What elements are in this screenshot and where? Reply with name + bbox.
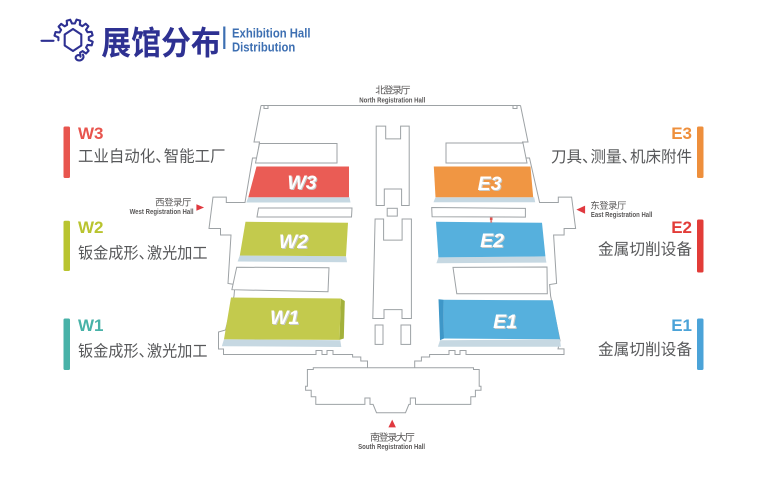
svg-text:W3: W3 <box>78 124 104 143</box>
svg-text:E1: E1 <box>671 316 692 335</box>
svg-text:E3: E3 <box>671 124 692 143</box>
svg-text:W1: W1 <box>78 316 104 335</box>
svg-text:W2: W2 <box>78 218 104 237</box>
svg-text:E2: E2 <box>671 218 692 237</box>
svg-text:W3: W3 <box>287 172 316 194</box>
svg-text:W1: W1 <box>270 307 299 329</box>
svg-text:E1: E1 <box>493 311 517 333</box>
svg-text:E3: E3 <box>478 173 502 195</box>
svg-text:North Registration Hall: North Registration Hall <box>359 97 425 104</box>
svg-text:Distribution: Distribution <box>232 41 295 55</box>
svg-text:Exhibition Hall: Exhibition Hall <box>232 27 311 41</box>
svg-text:E2: E2 <box>480 230 504 252</box>
svg-text:East Registration Hall: East Registration Hall <box>591 212 653 219</box>
svg-text:South Registration Hall: South Registration Hall <box>358 444 425 451</box>
svg-text:W2: W2 <box>279 231 308 253</box>
svg-text:West Registration Hall: West Registration Hall <box>130 209 194 216</box>
